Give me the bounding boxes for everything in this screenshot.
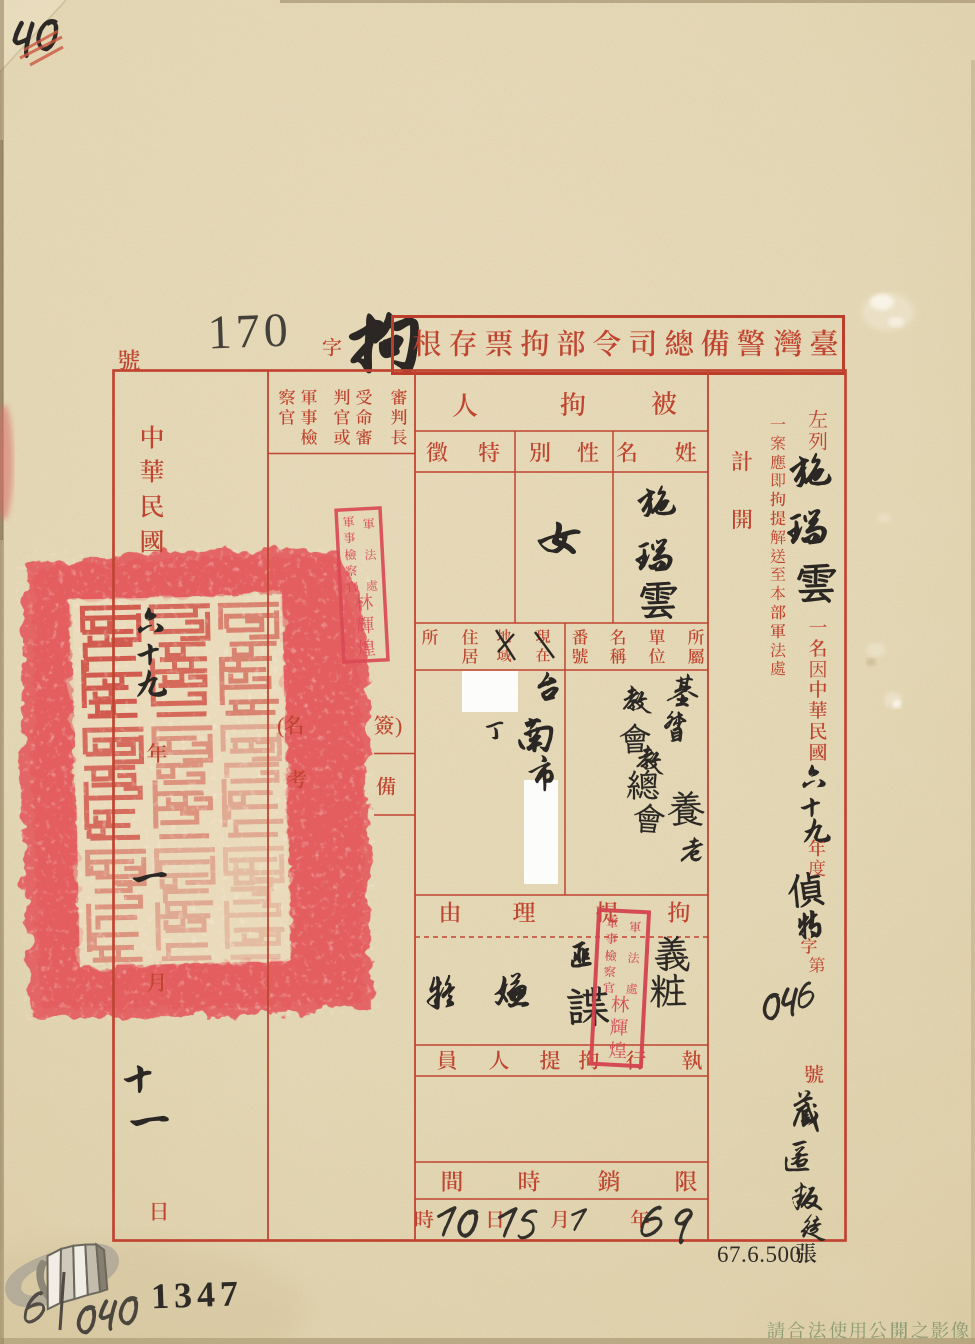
svg-text:1347: 1347 — [150, 1273, 243, 1316]
svg-text:170: 170 — [207, 304, 293, 360]
svg-text:): ) — [395, 713, 402, 738]
svg-text:67.6.500: 67.6.500 — [717, 1242, 802, 1267]
svg-text:(: ( — [277, 713, 284, 738]
